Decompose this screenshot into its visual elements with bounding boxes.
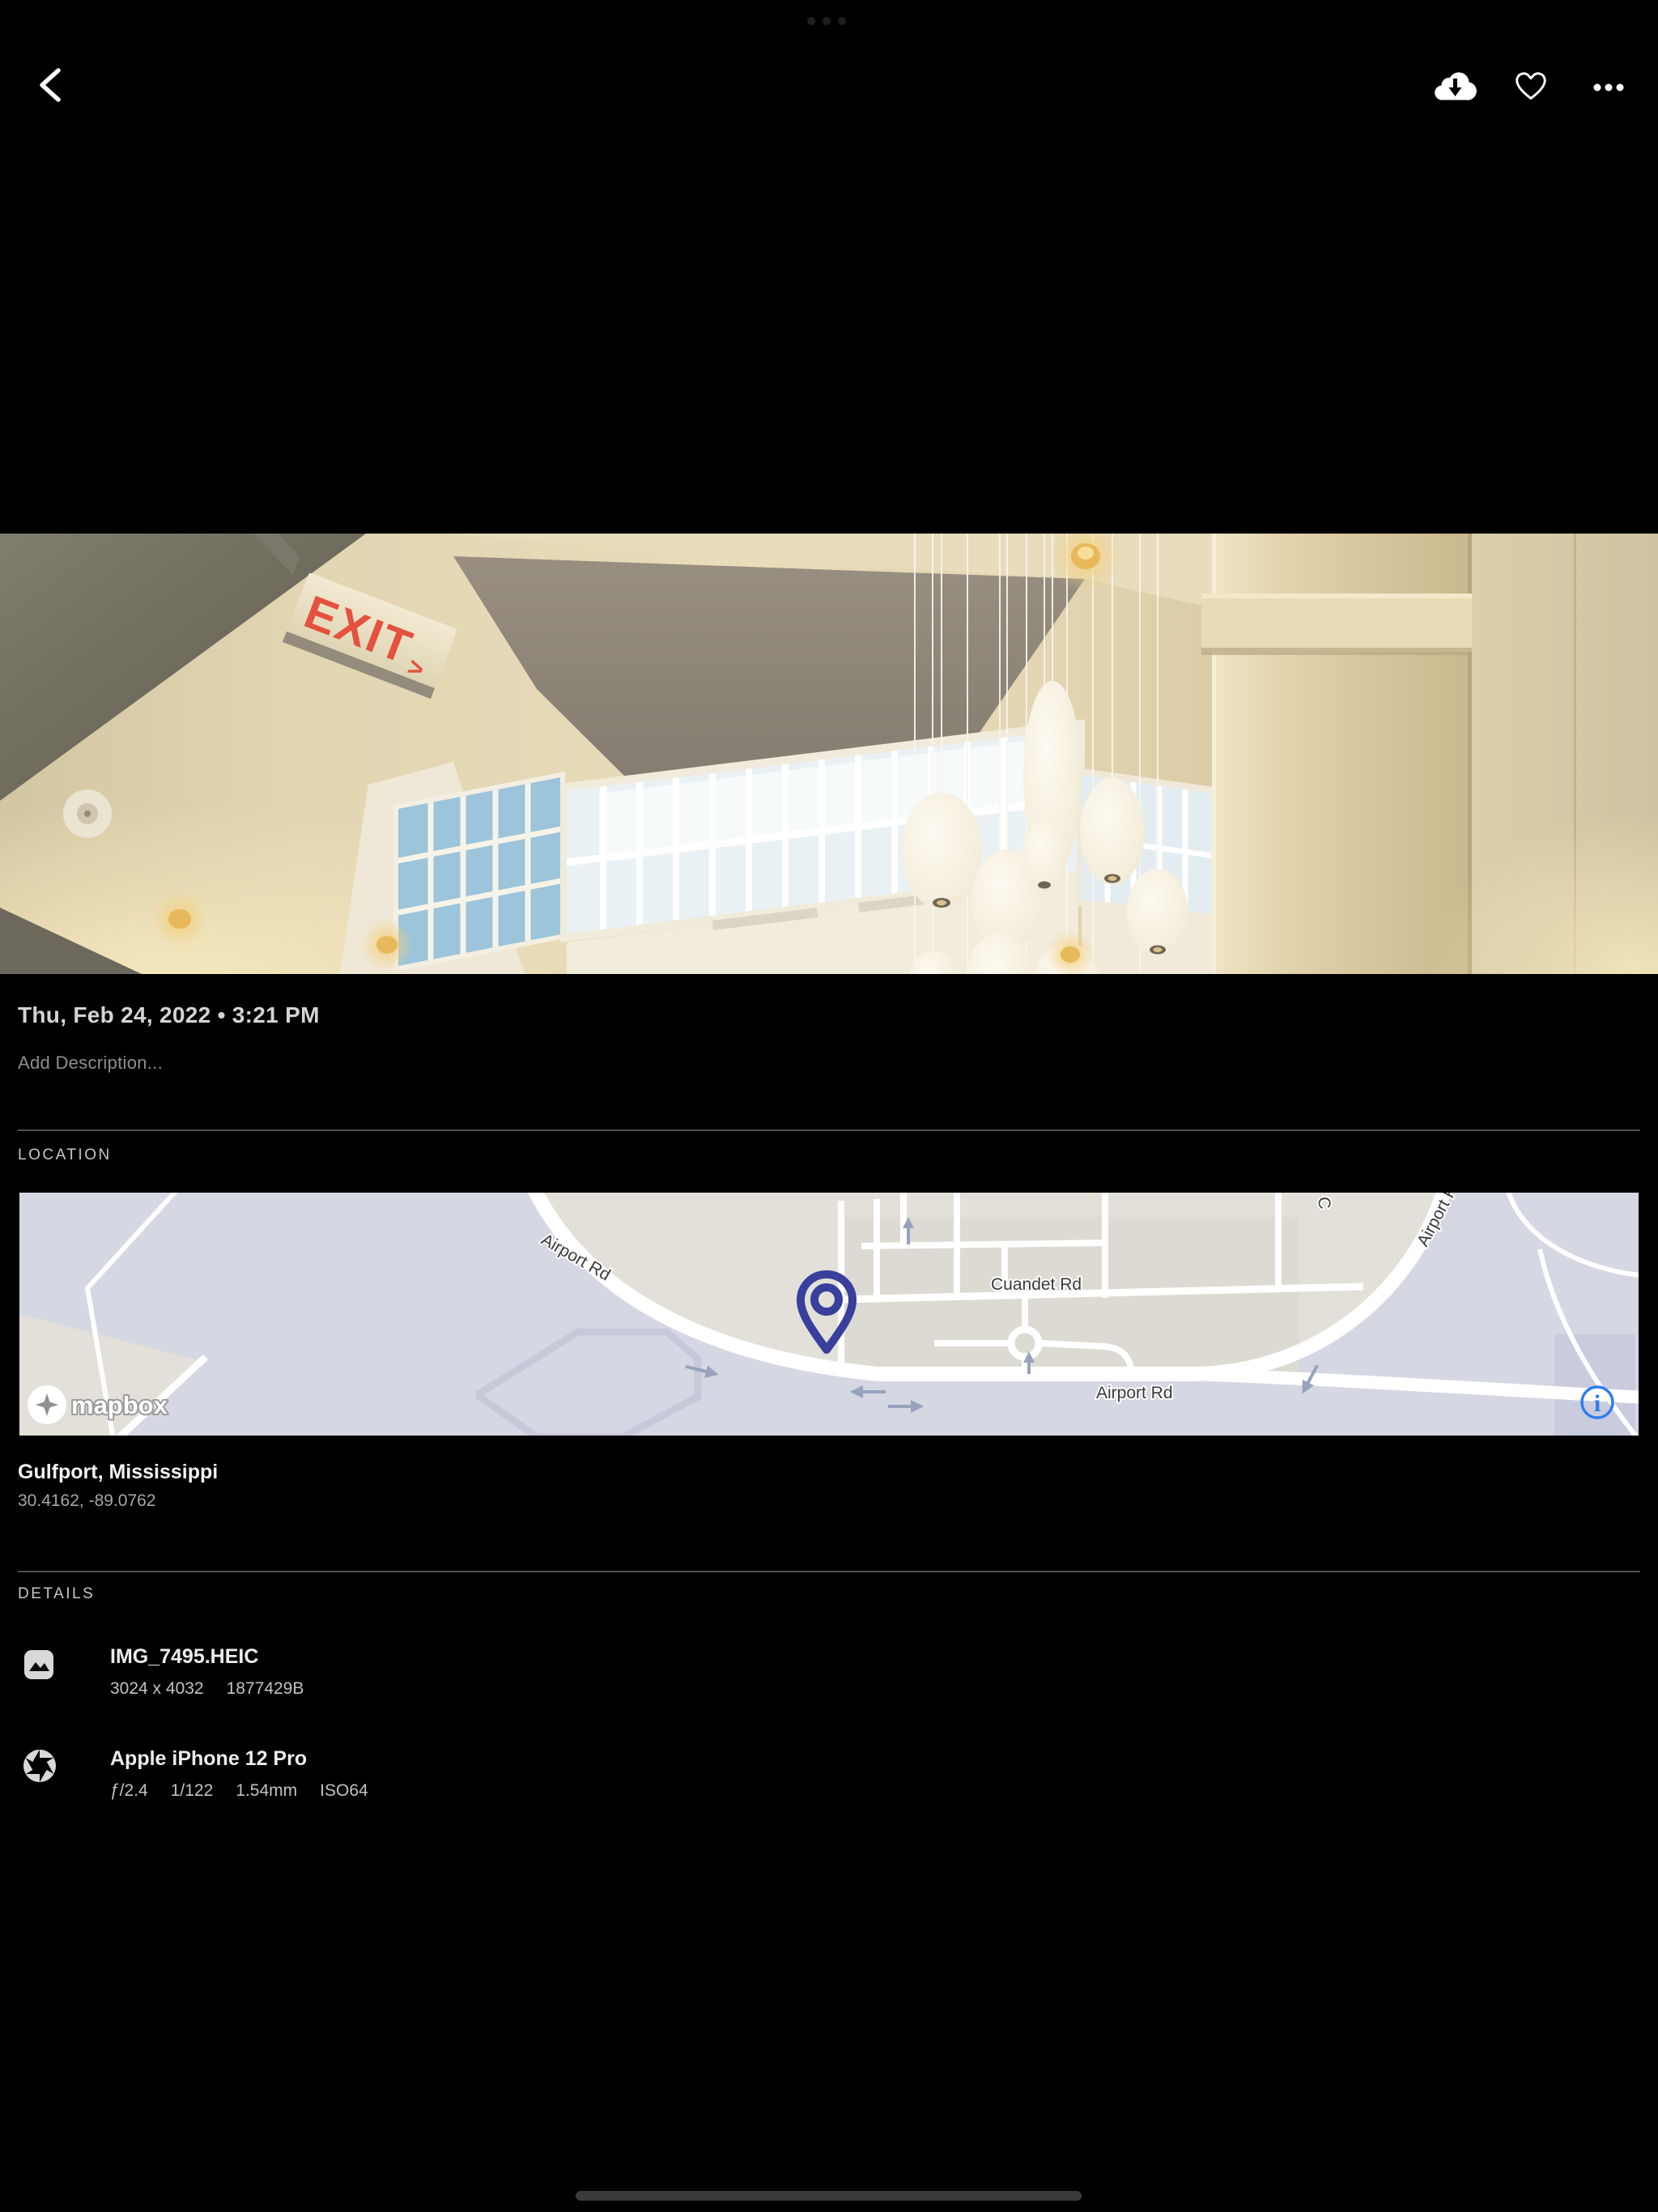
location-map[interactable]: Airport Rd Cuandet Rd Airport Rd Airport… [19, 1193, 1639, 1436]
file-name: IMG_7495.HEIC [110, 1645, 258, 1669]
file-info: 3024 x 40321877429B [110, 1679, 326, 1699]
home-indicator[interactable] [576, 2191, 1082, 2201]
heart-icon [1517, 74, 1545, 99]
details-section-header: DETAILS [18, 1585, 95, 1603]
map-graphic: Airport Rd Cuandet Rd Airport Rd Airport… [19, 1193, 1639, 1436]
camera-exif: ƒ/2.41/1221.54mmISO64 [110, 1781, 391, 1801]
smoke-detector [63, 789, 112, 838]
column [1201, 534, 1483, 974]
location-section-header: LOCATION [18, 1146, 112, 1164]
file-size: 1877429B [227, 1679, 304, 1698]
svg-text:i: i [1594, 1390, 1601, 1417]
exif-focal-length: 1.54mm [236, 1781, 297, 1800]
map-label-street-c: C [1314, 1196, 1334, 1210]
chevron-left-icon [42, 70, 58, 100]
divider [18, 1129, 1640, 1131]
back-button[interactable] [32, 66, 68, 104]
ellipsis-icon [1594, 84, 1624, 91]
image-file-icon [23, 1648, 55, 1681]
map-label-airport-rd-main: Airport Rd [1096, 1384, 1173, 1402]
divider [18, 1571, 1640, 1572]
photo-graphic: EXIT > [0, 534, 1658, 974]
location-coordinates: 30.4162, -89.0762 [18, 1491, 155, 1511]
camera-aperture-icon [21, 1747, 58, 1784]
cloud-download-icon [1435, 72, 1477, 100]
description-field[interactable]: Add Description... [18, 1053, 163, 1074]
photo-detail-screen: EXIT > [0, 0, 1658, 2212]
file-dimensions: 3024 x 4032 [110, 1679, 204, 1698]
mapbox-logo[interactable]: mapbox [28, 1385, 168, 1424]
exif-aperture: ƒ/2.4 [110, 1781, 148, 1800]
favorite-button[interactable] [1513, 67, 1549, 103]
photo-image[interactable]: EXIT > [0, 534, 1658, 974]
clerestory-windows-left [393, 772, 565, 972]
camera-name: Apple iPhone 12 Pro [110, 1747, 307, 1771]
photo-date: Thu, Feb 24, 2022 • 3:21 PM [18, 1002, 320, 1028]
download-button[interactable] [1432, 68, 1479, 105]
multitasking-indicator-icon [807, 17, 846, 25]
mapbox-logo-text: mapbox [71, 1391, 168, 1419]
exif-iso: ISO64 [320, 1781, 368, 1800]
exif-shutter: 1/122 [171, 1781, 214, 1800]
more-options-button[interactable] [1592, 81, 1626, 94]
map-label-cuandet-rd: Cuandet Rd [991, 1275, 1082, 1294]
location-place: Gulfport, Mississippi [18, 1461, 218, 1484]
